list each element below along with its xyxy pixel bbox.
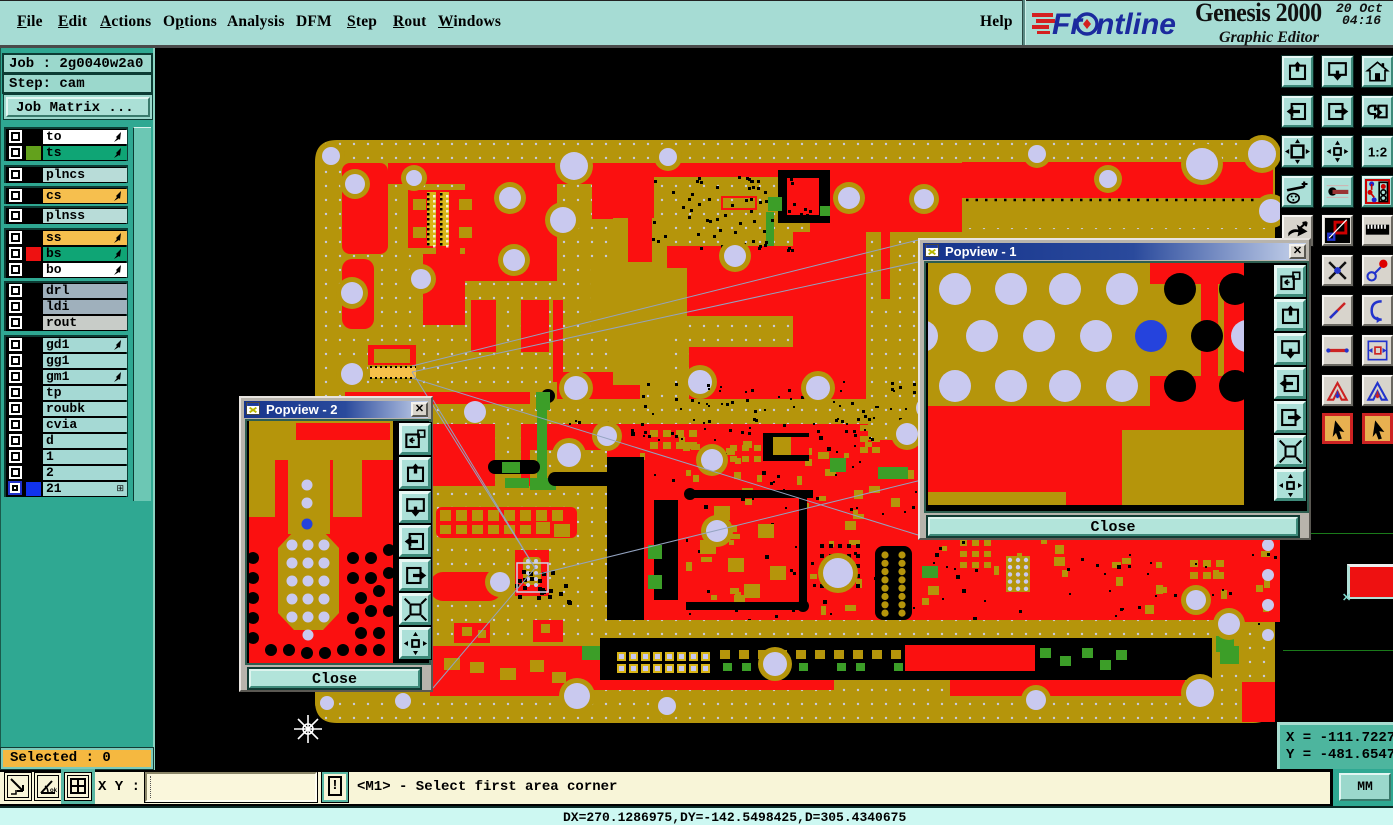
svg-text:ok: ok [50,788,58,794]
svg-text:ntline: ntline [1096,8,1176,41]
svg-text:Fr: Fr [1052,8,1084,41]
svg-text:1:2: 1:2 [1368,145,1387,160]
